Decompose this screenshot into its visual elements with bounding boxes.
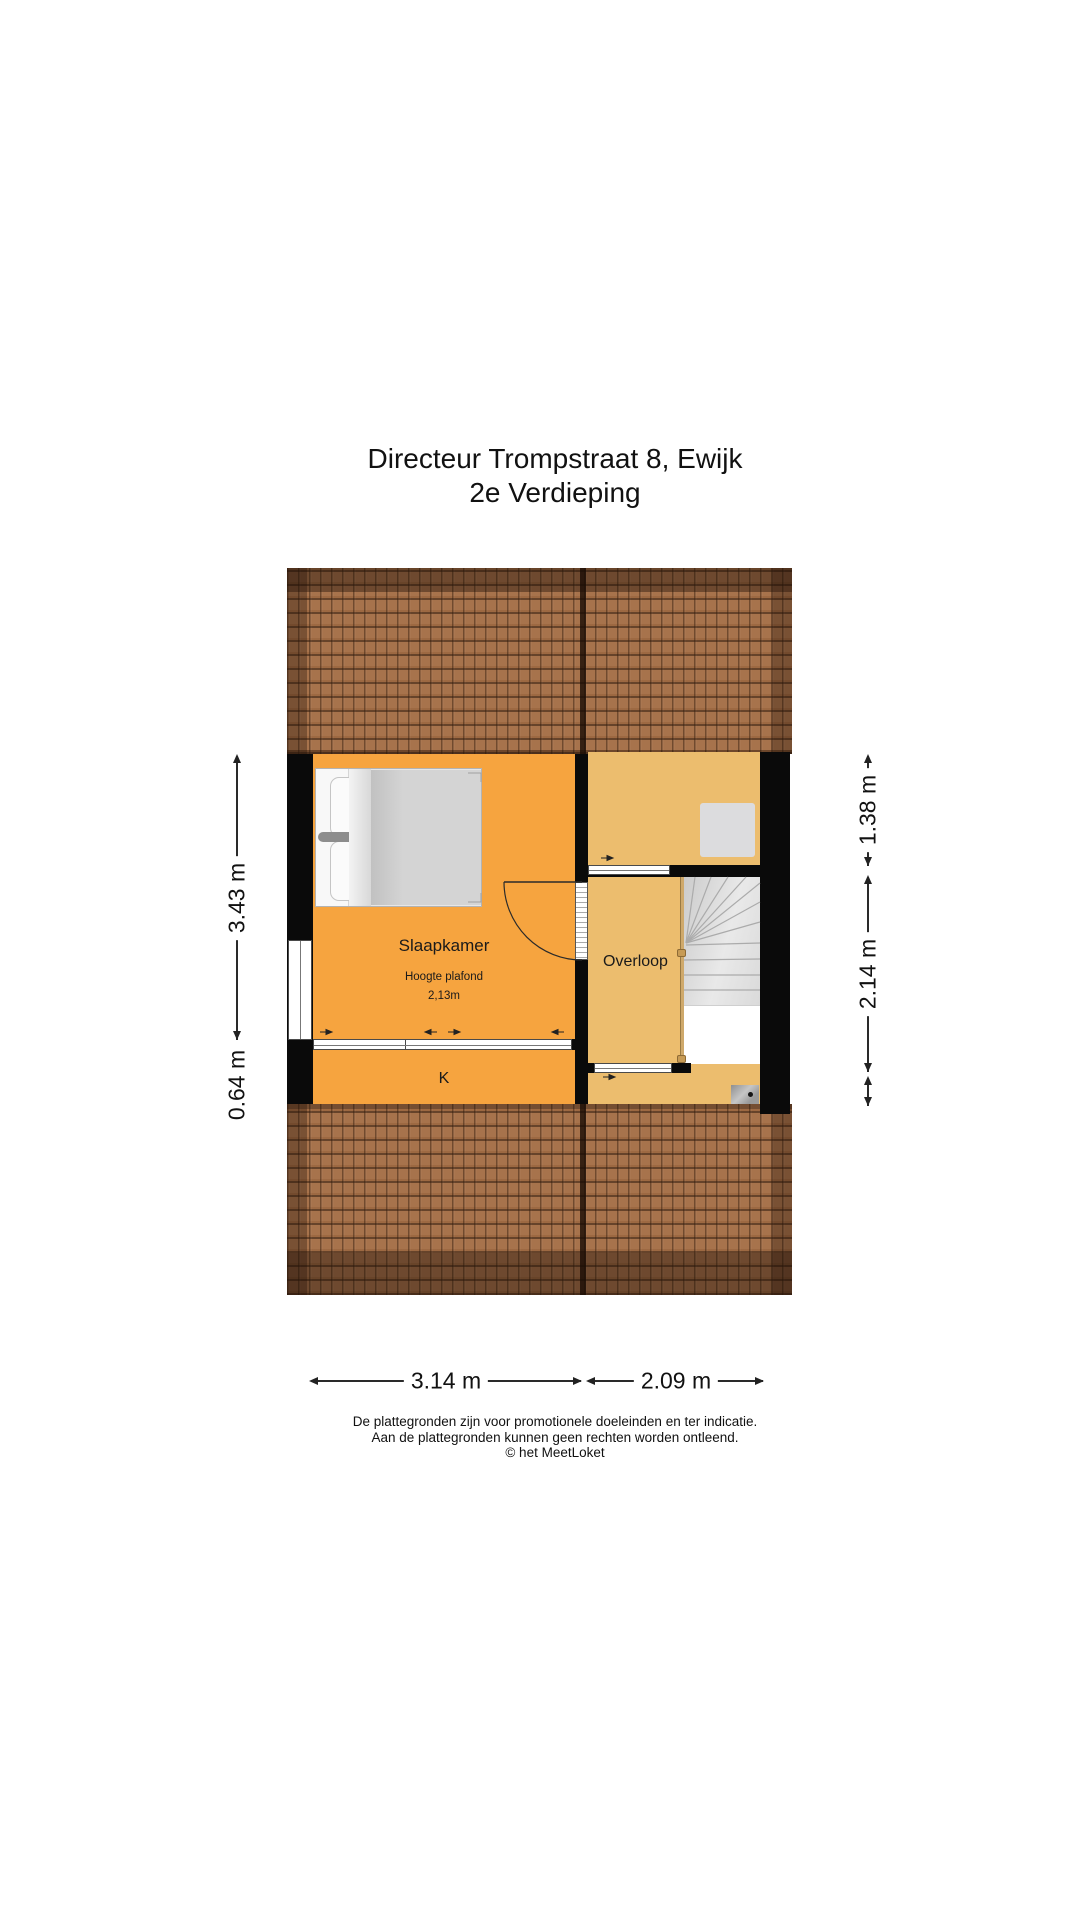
room-label-closet: K	[313, 1070, 575, 1088]
plan-annotations	[287, 568, 792, 1295]
floorplan-page: Directeur Trompstraat 8, Ewijk 2e Verdie…	[0, 0, 1080, 1920]
dim-label-right-1: 1.38 m	[855, 768, 882, 852]
disclaimer-line3: © het MeetLoket	[0, 1445, 1080, 1461]
ceiling-height-note: Hoogte plafond 2,13m	[313, 968, 575, 1006]
dim-arrow	[864, 1076, 872, 1085]
page-title: Directeur Trompstraat 8, Ewijk 2e Verdie…	[0, 442, 1080, 510]
ceiling-note-line1: Hoogte plafond	[313, 968, 575, 987]
dim-arrow	[864, 754, 872, 763]
disclaimer-line2: Aan de plattegronden kunnen geen rechten…	[0, 1430, 1080, 1446]
dim-arrow	[864, 1063, 872, 1072]
title-floor: 2e Verdieping	[0, 476, 1080, 510]
dim-arrow	[755, 1377, 764, 1385]
disclaimer-line1: De plattegronden zijn voor promotionele …	[0, 1414, 1080, 1430]
dim-arrow	[864, 1097, 872, 1106]
dim-arrow	[309, 1377, 318, 1385]
floorplan-drawing: Slaapkamer Hoogte plafond 2,13m Overloop…	[287, 568, 792, 1295]
dim-label-right-2: 2.14 m	[855, 932, 882, 1016]
dim-arrow	[586, 1377, 595, 1385]
dim-arrow	[573, 1377, 582, 1385]
room-label-slaapkamer: Slaapkamer	[313, 936, 575, 956]
bed-corner-marks	[468, 773, 481, 902]
dim-label-bottom-2: 2.09 m	[634, 1368, 718, 1395]
room-label-overloop: Overloop	[588, 953, 683, 971]
ceiling-note-line2: 2,13m	[313, 987, 575, 1006]
title-address: Directeur Trompstraat 8, Ewijk	[0, 442, 1080, 476]
dim-label-bottom-1: 3.14 m	[404, 1368, 488, 1395]
disclaimer: De plattegronden zijn voor promotionele …	[0, 1414, 1080, 1461]
dim-label-left-1: 3.43 m	[224, 856, 251, 940]
dim-arrow	[233, 754, 241, 763]
dim-arrow	[233, 1031, 241, 1040]
dim-arrow	[864, 875, 872, 884]
dim-arrow	[864, 857, 872, 866]
dim-label-left-2: 0.64 m	[224, 1043, 251, 1127]
stair-treads	[684, 877, 760, 990]
